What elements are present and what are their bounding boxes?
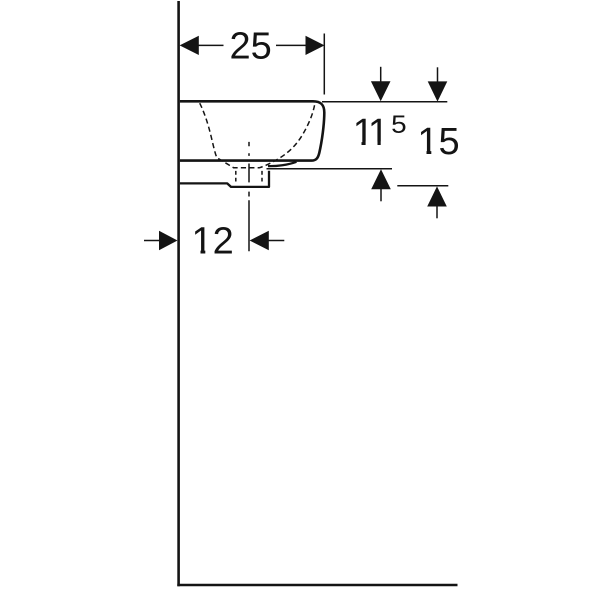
svg-text:25: 25	[230, 25, 272, 67]
svg-text:11: 11	[353, 112, 388, 154]
svg-text:12: 12	[191, 220, 233, 262]
svg-text:5: 5	[391, 111, 407, 139]
svg-text:15: 15	[417, 121, 459, 163]
